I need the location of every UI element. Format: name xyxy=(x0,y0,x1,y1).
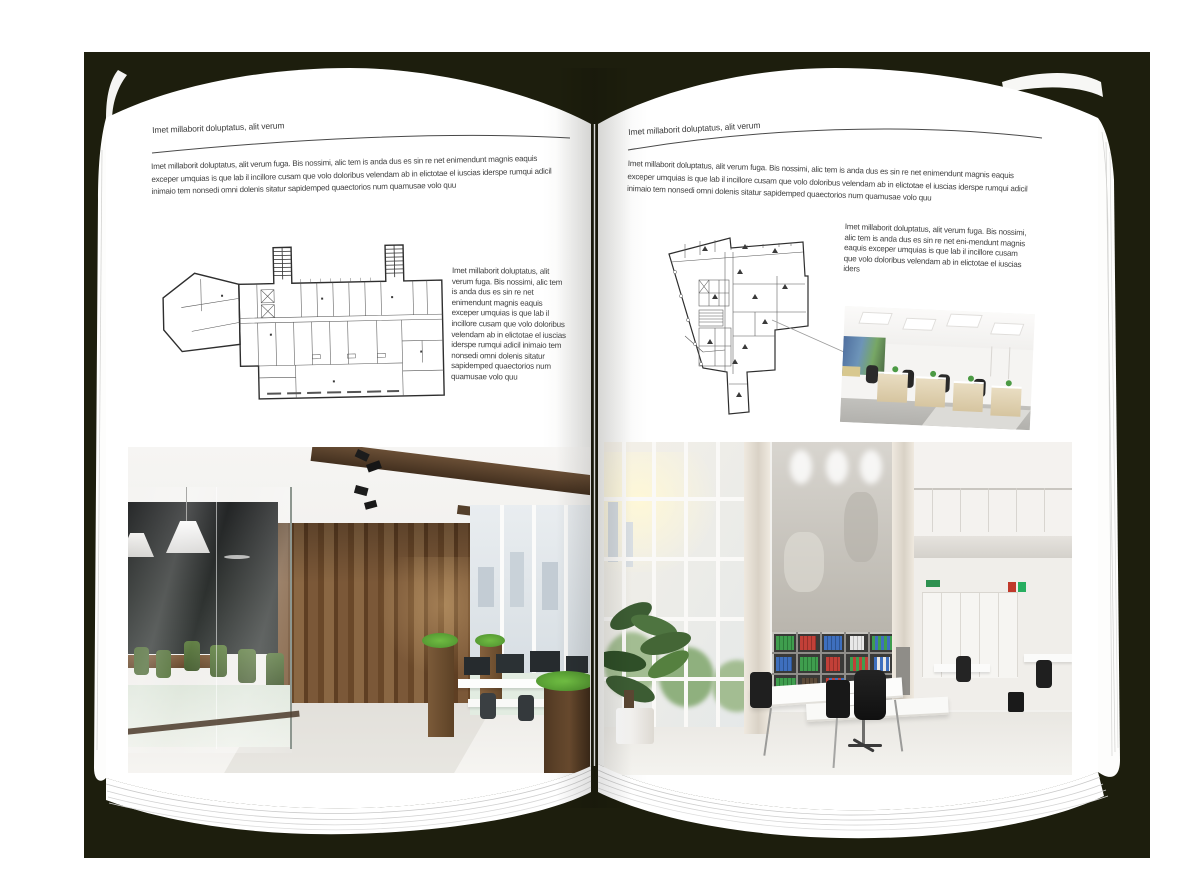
binders-red xyxy=(800,636,816,650)
planter-grass xyxy=(422,633,458,648)
light-panel xyxy=(946,314,983,328)
mezzanine-underside xyxy=(892,536,1072,558)
window-mullion xyxy=(684,442,688,727)
right-page-side-text: Imet millaborit doluptatus, alit verum f… xyxy=(843,222,1031,281)
window-transom xyxy=(604,557,764,561)
railing-posts xyxy=(904,488,1072,532)
left-page-side-text: Imet millaborit doluptatus, alit verum f… xyxy=(451,266,568,384)
monitor xyxy=(464,657,490,675)
city-silhouette xyxy=(478,567,494,607)
downlight-glow xyxy=(790,450,812,484)
right-office-photo xyxy=(604,442,1072,775)
monitor xyxy=(530,651,560,672)
monitor xyxy=(496,654,524,673)
door-line xyxy=(1008,347,1010,379)
concrete-texture xyxy=(844,492,878,562)
lounge-sofa xyxy=(842,366,860,377)
glass-seam xyxy=(216,487,217,749)
mesh-chair xyxy=(826,680,850,718)
window-mullion xyxy=(652,442,656,727)
window-mullion xyxy=(716,442,720,727)
office-chair xyxy=(956,656,971,682)
office-chair xyxy=(480,693,496,719)
magazine-spread-mockup: Imet millaborit doluptatus, alit verum I… xyxy=(0,0,1200,891)
city-silhouette xyxy=(510,552,524,607)
mesh-chair xyxy=(750,672,772,708)
planter-grass xyxy=(475,634,505,647)
plant-pot xyxy=(616,708,654,744)
binders-blue xyxy=(824,636,842,650)
glass-edge xyxy=(290,487,292,749)
downlight-glow xyxy=(826,450,848,484)
city-silhouette xyxy=(608,502,618,562)
wood-planter xyxy=(428,643,454,737)
binders-red xyxy=(826,657,840,671)
red-safety-sign xyxy=(1008,582,1016,592)
binders-white xyxy=(850,636,864,650)
sunlight-patch xyxy=(378,557,470,677)
concrete-texture xyxy=(784,532,824,592)
green-safety-sign xyxy=(1018,582,1026,592)
wood-cabinet xyxy=(990,385,1021,416)
light-panel xyxy=(990,323,1024,336)
left-floorplan-drawing xyxy=(160,240,446,406)
binders-green xyxy=(800,657,818,671)
wood-cabinet xyxy=(877,372,908,403)
waste-bin xyxy=(1008,692,1024,712)
track-spotlight xyxy=(364,500,377,510)
binders-blue xyxy=(776,657,792,671)
window-mullion xyxy=(564,505,568,677)
left-office-photo xyxy=(128,447,590,773)
office-chair xyxy=(1036,660,1052,688)
binders-mixed xyxy=(850,657,868,671)
light-panel xyxy=(902,318,936,331)
office-chair xyxy=(518,695,534,721)
door-line xyxy=(990,346,992,376)
city-silhouette xyxy=(542,562,558,610)
planter-grass-large xyxy=(536,671,590,691)
window-transom xyxy=(604,497,764,501)
exit-sign xyxy=(926,580,940,587)
shelf-line xyxy=(772,652,896,654)
wood-beam xyxy=(311,447,590,497)
binders-green xyxy=(776,636,794,650)
wood-planter-large xyxy=(544,685,590,773)
light-panel xyxy=(858,312,892,325)
binders-mixed xyxy=(874,657,890,671)
office-chair xyxy=(866,365,879,384)
binders-mixed xyxy=(872,636,892,650)
mesh-chair-large xyxy=(854,670,886,720)
right-small-office-photo xyxy=(840,306,1035,430)
downlight-glow xyxy=(860,450,882,484)
wood-cabinet xyxy=(915,376,946,407)
wood-cabinet xyxy=(953,381,984,412)
track-spotlight xyxy=(354,485,369,496)
